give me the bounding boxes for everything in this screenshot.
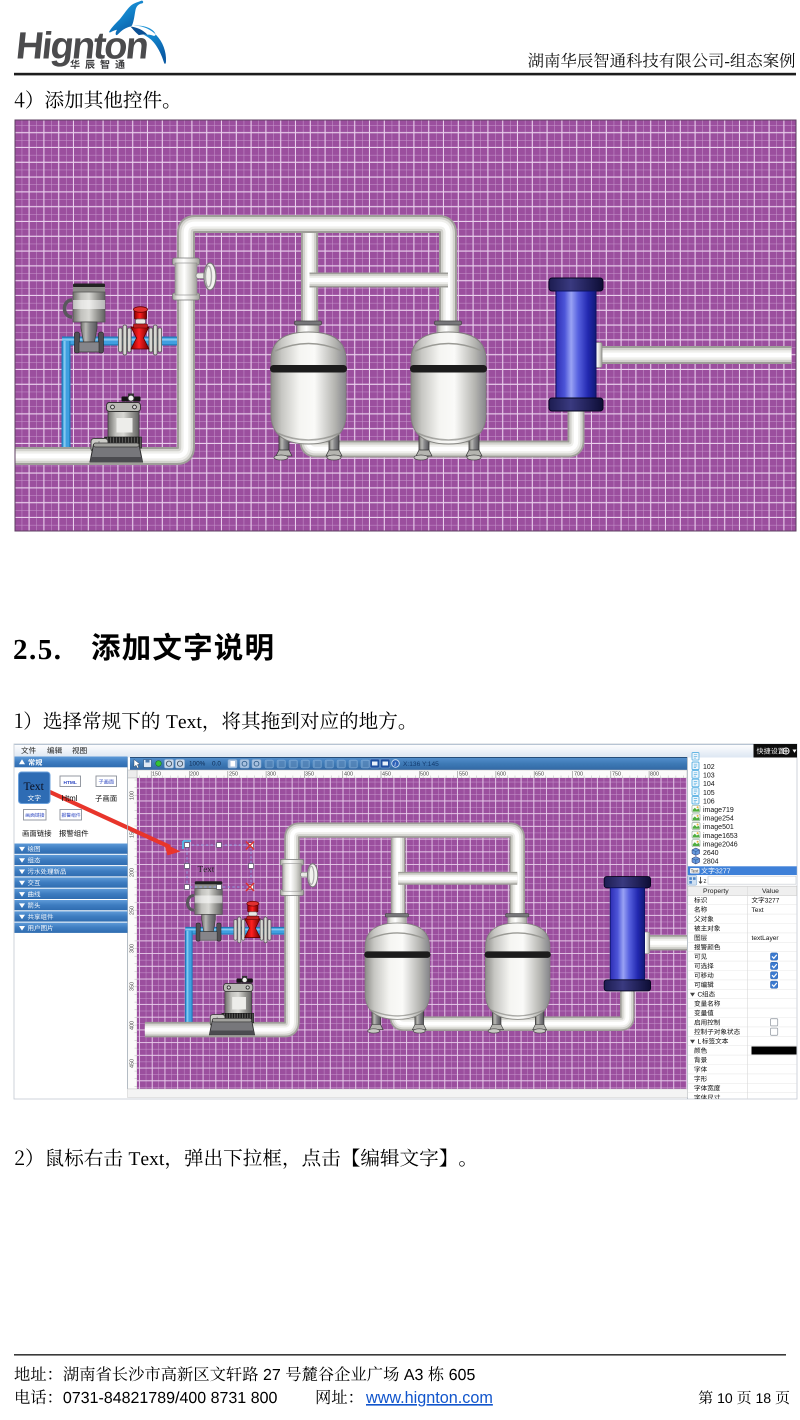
svg-text:600: 600 [497, 772, 506, 778]
svg-text:2804: 2804 [703, 859, 719, 866]
svg-text:250: 250 [229, 772, 238, 778]
svg-text:650: 650 [535, 772, 544, 778]
svg-text:z: z [704, 879, 707, 885]
svg-text:2640: 2640 [703, 850, 719, 857]
svg-text:100: 100 [130, 791, 136, 800]
svg-text:300: 300 [130, 944, 136, 953]
svg-text:HTML: HTML [64, 780, 77, 786]
svg-text:450: 450 [382, 772, 391, 778]
svg-text:textLayer: textLayer [752, 935, 780, 942]
svg-text:image719: image719 [703, 807, 734, 814]
svg-text:450: 450 [130, 1059, 136, 1068]
svg-text:0.0: 0.0 [212, 761, 221, 768]
svg-text:150: 150 [152, 772, 161, 778]
svg-text:200: 200 [190, 772, 199, 778]
svg-text:400: 400 [130, 1021, 136, 1030]
svg-text:750: 750 [612, 772, 621, 778]
svg-text:image2046: image2046 [703, 841, 738, 848]
svg-text:102: 102 [703, 764, 715, 771]
svg-text:104: 104 [703, 781, 715, 788]
svg-text:100%: 100% [189, 761, 206, 768]
svg-text:550: 550 [459, 772, 468, 778]
svg-text:Value: Value [762, 888, 779, 895]
svg-text:Text: Text [691, 869, 700, 874]
svg-text:800: 800 [650, 772, 659, 778]
svg-text:Property: Property [703, 888, 729, 895]
svg-text:350: 350 [305, 772, 314, 778]
svg-text:200: 200 [130, 868, 136, 877]
svg-text:700: 700 [574, 772, 583, 778]
svg-text:500: 500 [420, 772, 429, 778]
svg-text:www.hignton.com: www.hignton.com [365, 1389, 493, 1407]
svg-text:image254: image254 [703, 816, 734, 823]
svg-text:Html: Html [62, 794, 78, 803]
svg-text:image501: image501 [703, 824, 734, 831]
svg-text:106: 106 [703, 798, 715, 805]
svg-text:300: 300 [267, 772, 276, 778]
svg-text:Text: Text [752, 907, 764, 914]
svg-text:X:136 Y:145: X:136 Y:145 [403, 761, 439, 768]
svg-text:105: 105 [703, 790, 715, 797]
svg-text:Text: Text [24, 781, 45, 793]
svg-text:400: 400 [344, 772, 353, 778]
svg-text:250: 250 [130, 906, 136, 915]
svg-text:image1653: image1653 [703, 833, 738, 840]
svg-text:103: 103 [703, 773, 715, 780]
svg-text:350: 350 [130, 982, 136, 991]
